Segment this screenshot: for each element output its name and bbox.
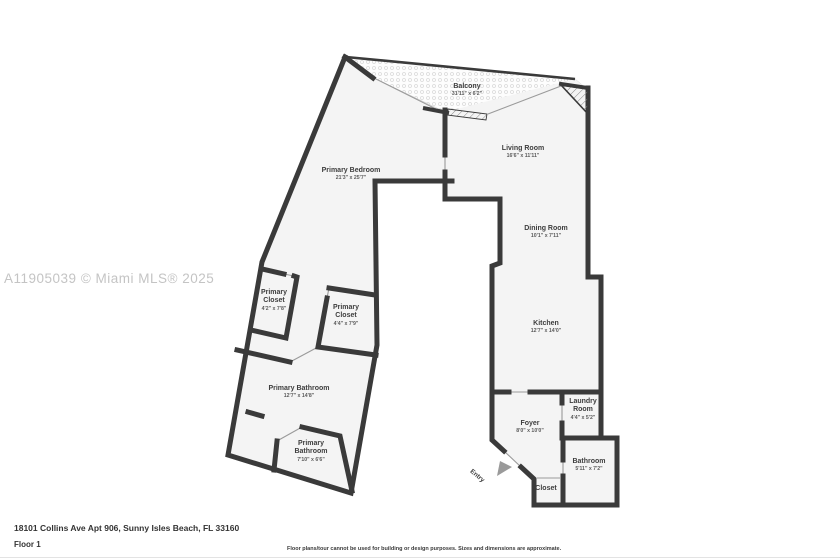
floor-areas <box>228 57 617 505</box>
mls-watermark: A11905039 © Miami MLS® 2025 <box>4 271 214 286</box>
entry-arrow-icon <box>497 461 512 476</box>
footer-divider <box>0 557 840 558</box>
disclaimer-text: Floor plans/tour cannot be used for buil… <box>287 546 561 552</box>
floor-plan-page: A11905039 © Miami MLS® 2025 Balcony 31'1… <box>0 0 840 560</box>
right-wing-floor <box>445 79 617 505</box>
floor-number: Floor 1 <box>14 540 41 549</box>
property-address: 18101 Collins Ave Apt 906, Sunny Isles B… <box>14 523 239 533</box>
